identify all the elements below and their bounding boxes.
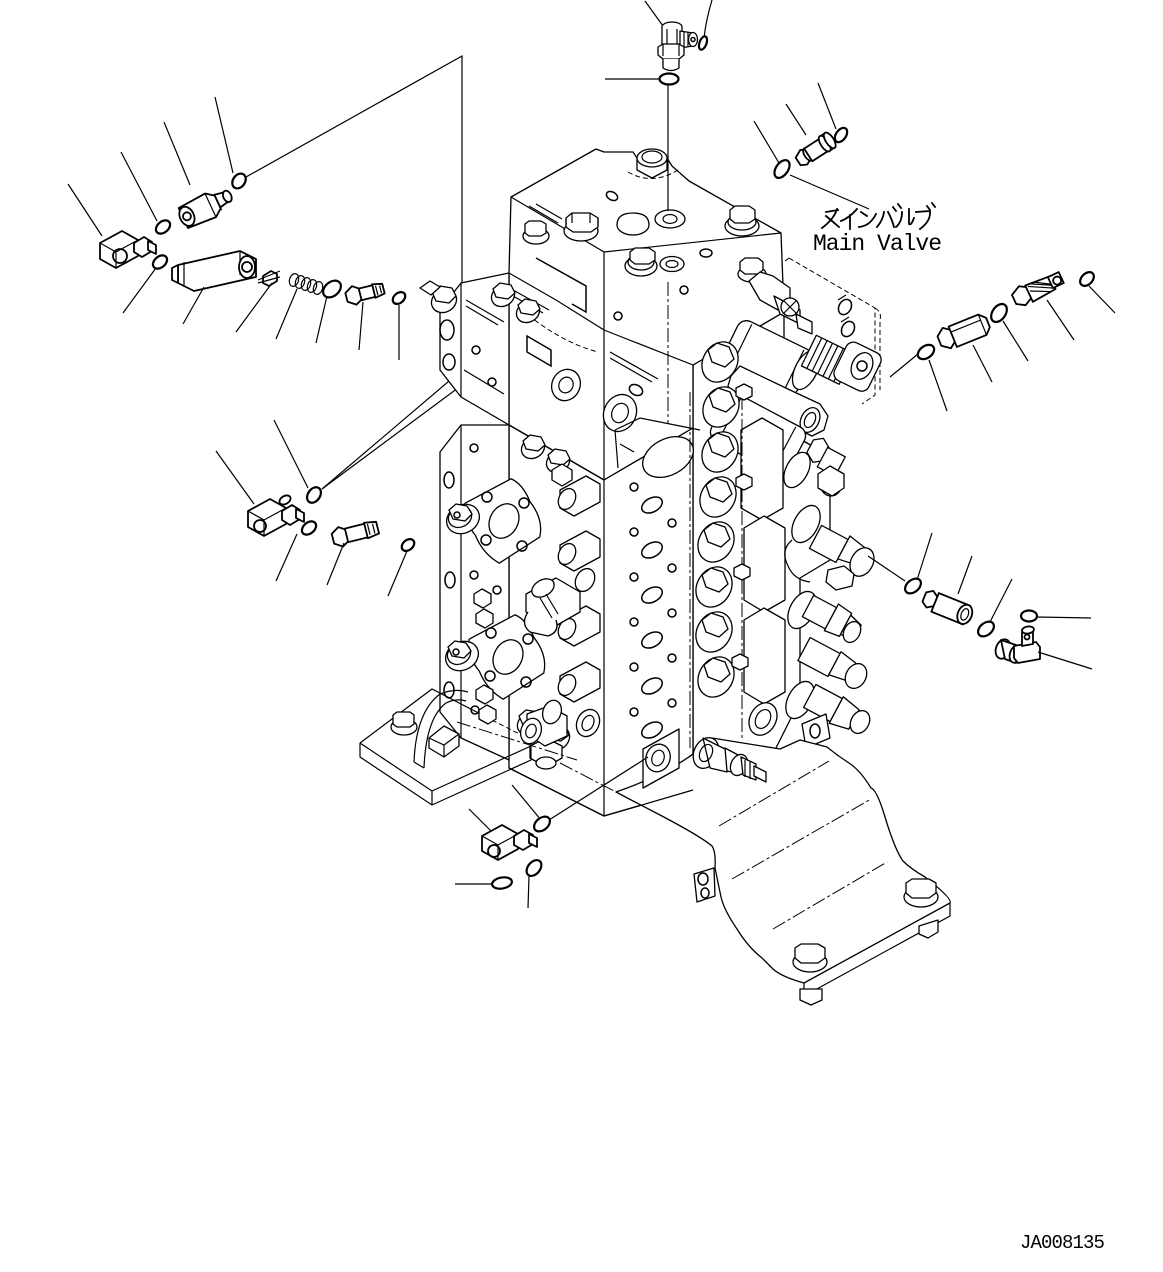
svg-text:Main Valve: Main Valve (813, 231, 941, 257)
svg-text:JA008135: JA008135 (1020, 1232, 1105, 1254)
